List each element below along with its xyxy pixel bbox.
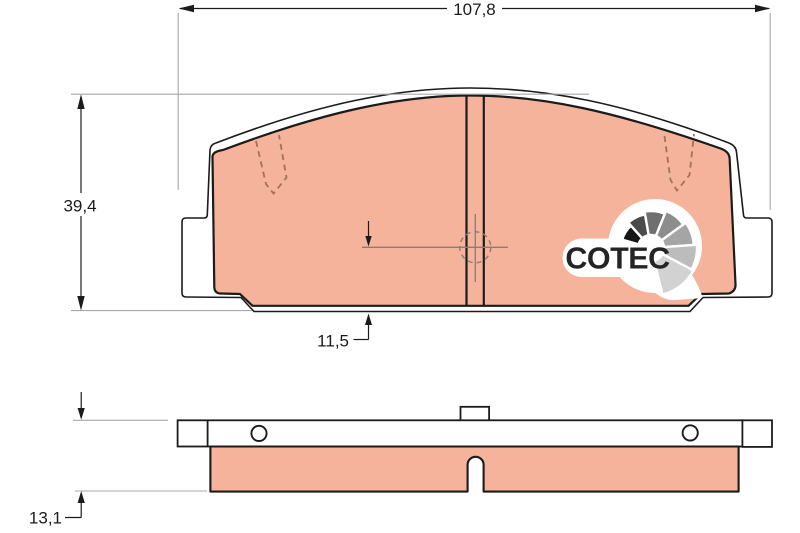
side-top-tab [461,407,490,421]
side-right-ear [742,420,772,447]
width-arrow-right [755,5,771,12]
height-arrow-top [77,94,84,109]
logo-text: COTEC [565,242,670,276]
width-dim-label: 107,8 [453,0,496,19]
width-arrow-left [179,5,195,12]
height-arrow-bottom [77,296,84,311]
front-view: COTEC 107,8 39,4 11,5 [63,0,772,351]
technical-drawing-canvas: COTEC 107,8 39,4 11,5 [0,0,800,533]
thickness-dim-label: 13,1 [29,509,62,528]
thickness-arrow-down [78,408,85,420]
offset-dim-label: 11,5 [317,332,349,351]
side-friction-material [210,447,738,492]
dimension-bottom-offset: 11,5 [317,314,372,351]
height-dim-label: 39,4 [63,197,96,216]
side-view: 13,1 [29,392,772,528]
dimension-thickness: 13,1 [29,392,207,528]
rivet-hole-right [683,425,698,440]
technical-drawing-page: COTEC 107,8 39,4 11,5 [0,0,800,533]
rivet-hole-left [251,426,266,441]
